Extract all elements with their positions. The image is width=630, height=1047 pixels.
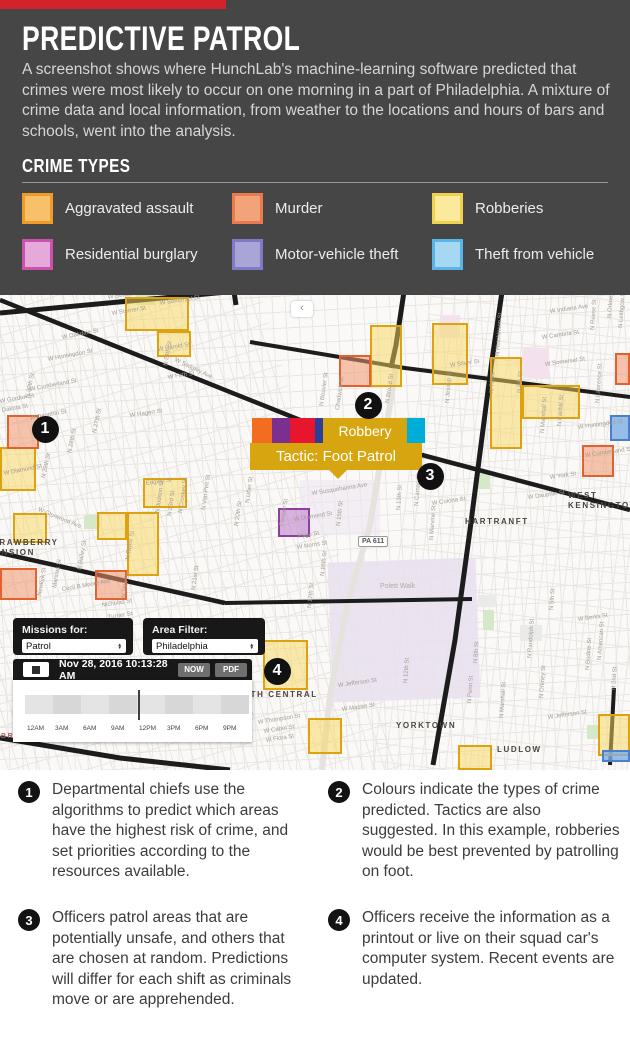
timeline-segment [81,695,109,714]
note-number: 2 [328,781,350,803]
robbery-label: Robbery [323,418,407,443]
annotation-note-3: 3Officers patrol areas that are potentia… [18,908,310,1011]
timeline-tick: 12PM [139,725,156,732]
missions-panel: Missions for: Patrol ▲▼ [13,618,133,655]
missions-select[interactable]: Patrol ▲▼ [22,639,126,653]
murder-segment [290,418,315,443]
infographic-page: PREDICTIVE PATROL A screenshot shows whe… [0,0,630,1047]
timeline-segment [137,695,165,714]
timeline-segment [53,695,81,714]
note-number: 4 [328,909,350,931]
timeline-scrubber[interactable] [25,695,249,714]
crime-zone-robbery [458,745,492,770]
callout-pointer [329,470,347,479]
legend-label: Residential burglary [65,246,198,263]
legend-heading: CRIME TYPES [22,156,130,177]
burglary-segment [272,418,290,443]
select-arrows-icon: ▲▼ [118,643,122,649]
timeline-segment [165,695,193,714]
pdf-button[interactable]: PDF [215,663,247,677]
annotation-marker-3: 3 [417,463,444,490]
timeline-tick: 3PM [167,725,180,732]
note-text: Departmental chiefs use the algorithms t… [52,780,310,883]
legend-swatch [22,239,53,270]
note-text: Colours indicate the types of crime pred… [362,780,620,883]
page-description: A screenshot shows where HunchLab's mach… [22,60,616,142]
legend-item: Robberies [432,193,543,224]
crime-zone-robbery [308,718,342,754]
stop-button[interactable] [23,662,49,677]
legend-label: Motor-vehicle theft [275,246,398,263]
neighborhood-label: YORKTOWN [396,721,456,731]
annotation-marker-1: 1 [32,416,59,443]
legend-item: Theft from vehicle [432,239,594,270]
timeline-segment [193,695,221,714]
area-filter-panel: Area Filter: Philadelphia ▲▼ [143,618,265,655]
legend-label: Theft from vehicle [475,246,594,263]
timeline-tick: 9PM [223,725,236,732]
neighborhood-label: LUDLOW [497,745,542,755]
annotation-marker-2: 2 [355,392,382,419]
footer-section: 1Departmental chiefs use the algorithms … [0,770,630,1047]
note-text: Officers patrol areas that are potential… [52,908,310,1011]
assault-segment [252,418,272,443]
timeline-tick: 6AM [83,725,96,732]
map-collapse-control[interactable]: ‹ [291,301,313,317]
prediction-callout: Robbery [252,418,425,443]
timeline-tick: 9AM [111,725,124,732]
legend-item: Residential burglary [22,239,198,270]
polett-walk-label: Polett Walk [380,583,415,590]
select-arrows-icon: ▲▼ [250,643,254,649]
legend-label: Robberies [475,200,543,217]
timeline-tick: 12AM [27,725,44,732]
area-filter-select[interactable]: Philadelphia ▲▼ [152,639,258,653]
crime-zone-robbery [370,325,402,387]
legend-swatch [232,239,263,270]
timeline-tick: 6PM [195,725,208,732]
annotation-note-2: 2Colours indicate the types of crime pre… [328,780,620,883]
header-section: PREDICTIVE PATROL A screenshot shows whe… [0,0,630,295]
crime-zone-theft_vehicle [602,750,630,762]
legend-swatch [232,193,263,224]
area-filter-label: Area Filter: [152,624,207,636]
timeline-panel: 12AM3AM6AM9AM12PM3PM6PM9PM [13,680,252,742]
accent-bar [0,0,226,9]
hunchlab-map[interactable]: W Seltzer StW Somerset StW Sterner StW O… [0,295,630,770]
legend-label: Aggravated assault [65,200,193,217]
legend-swatch [432,193,463,224]
legend-label: Murder [275,200,323,217]
theft-from-vehicle-segment [407,418,425,443]
route-611-badge: PA 611 [358,536,388,547]
vehicle-theft-segment [315,418,323,443]
divider [22,182,608,183]
annotation-marker-4: 4 [264,658,291,685]
tactic-label: Tactic: Foot Patrol [250,443,422,470]
now-button[interactable]: NOW [178,663,210,677]
neighborhood-label: HARTRANFT [465,517,529,527]
annotation-note-4: 4Officers receive the information as a p… [328,908,620,990]
timeline-cursor[interactable] [138,690,140,720]
timestamp: Nov 28, 2016 10:13:28 AM [59,658,178,682]
annotation-note-1: 1Departmental chiefs use the algorithms … [18,780,310,883]
crime-zone-murder [615,353,630,385]
legend-item: Motor-vehicle theft [232,239,398,270]
crime-zone-robbery [97,512,127,540]
crime-zone-robbery [522,385,580,419]
page-title: PREDICTIVE PATROL [22,20,300,59]
time-control-bar: Nov 28, 2016 10:13:28 AM NOW PDF [13,659,252,680]
legend-swatch [432,239,463,270]
legend-item: Aggravated assault [22,193,193,224]
timeline-tick: 3AM [55,725,68,732]
crime-zone-murder [0,568,37,600]
note-number: 3 [18,909,40,931]
neighborhood-label: WEST KENSINGTON [568,491,630,512]
legend-swatch [22,193,53,224]
timeline-segment [221,695,249,714]
note-number: 1 [18,781,40,803]
timeline-segment [109,695,137,714]
area-filter-value: Philadelphia [156,641,208,652]
missions-label: Missions for: [22,624,87,636]
neighborhood-label: STRAWBERRY MANSION [0,538,59,559]
timeline-segment [25,695,53,714]
stop-icon [32,666,40,674]
legend-item: Murder [232,193,323,224]
note-text: Officers receive the information as a pr… [362,908,620,990]
missions-value: Patrol [26,641,51,652]
